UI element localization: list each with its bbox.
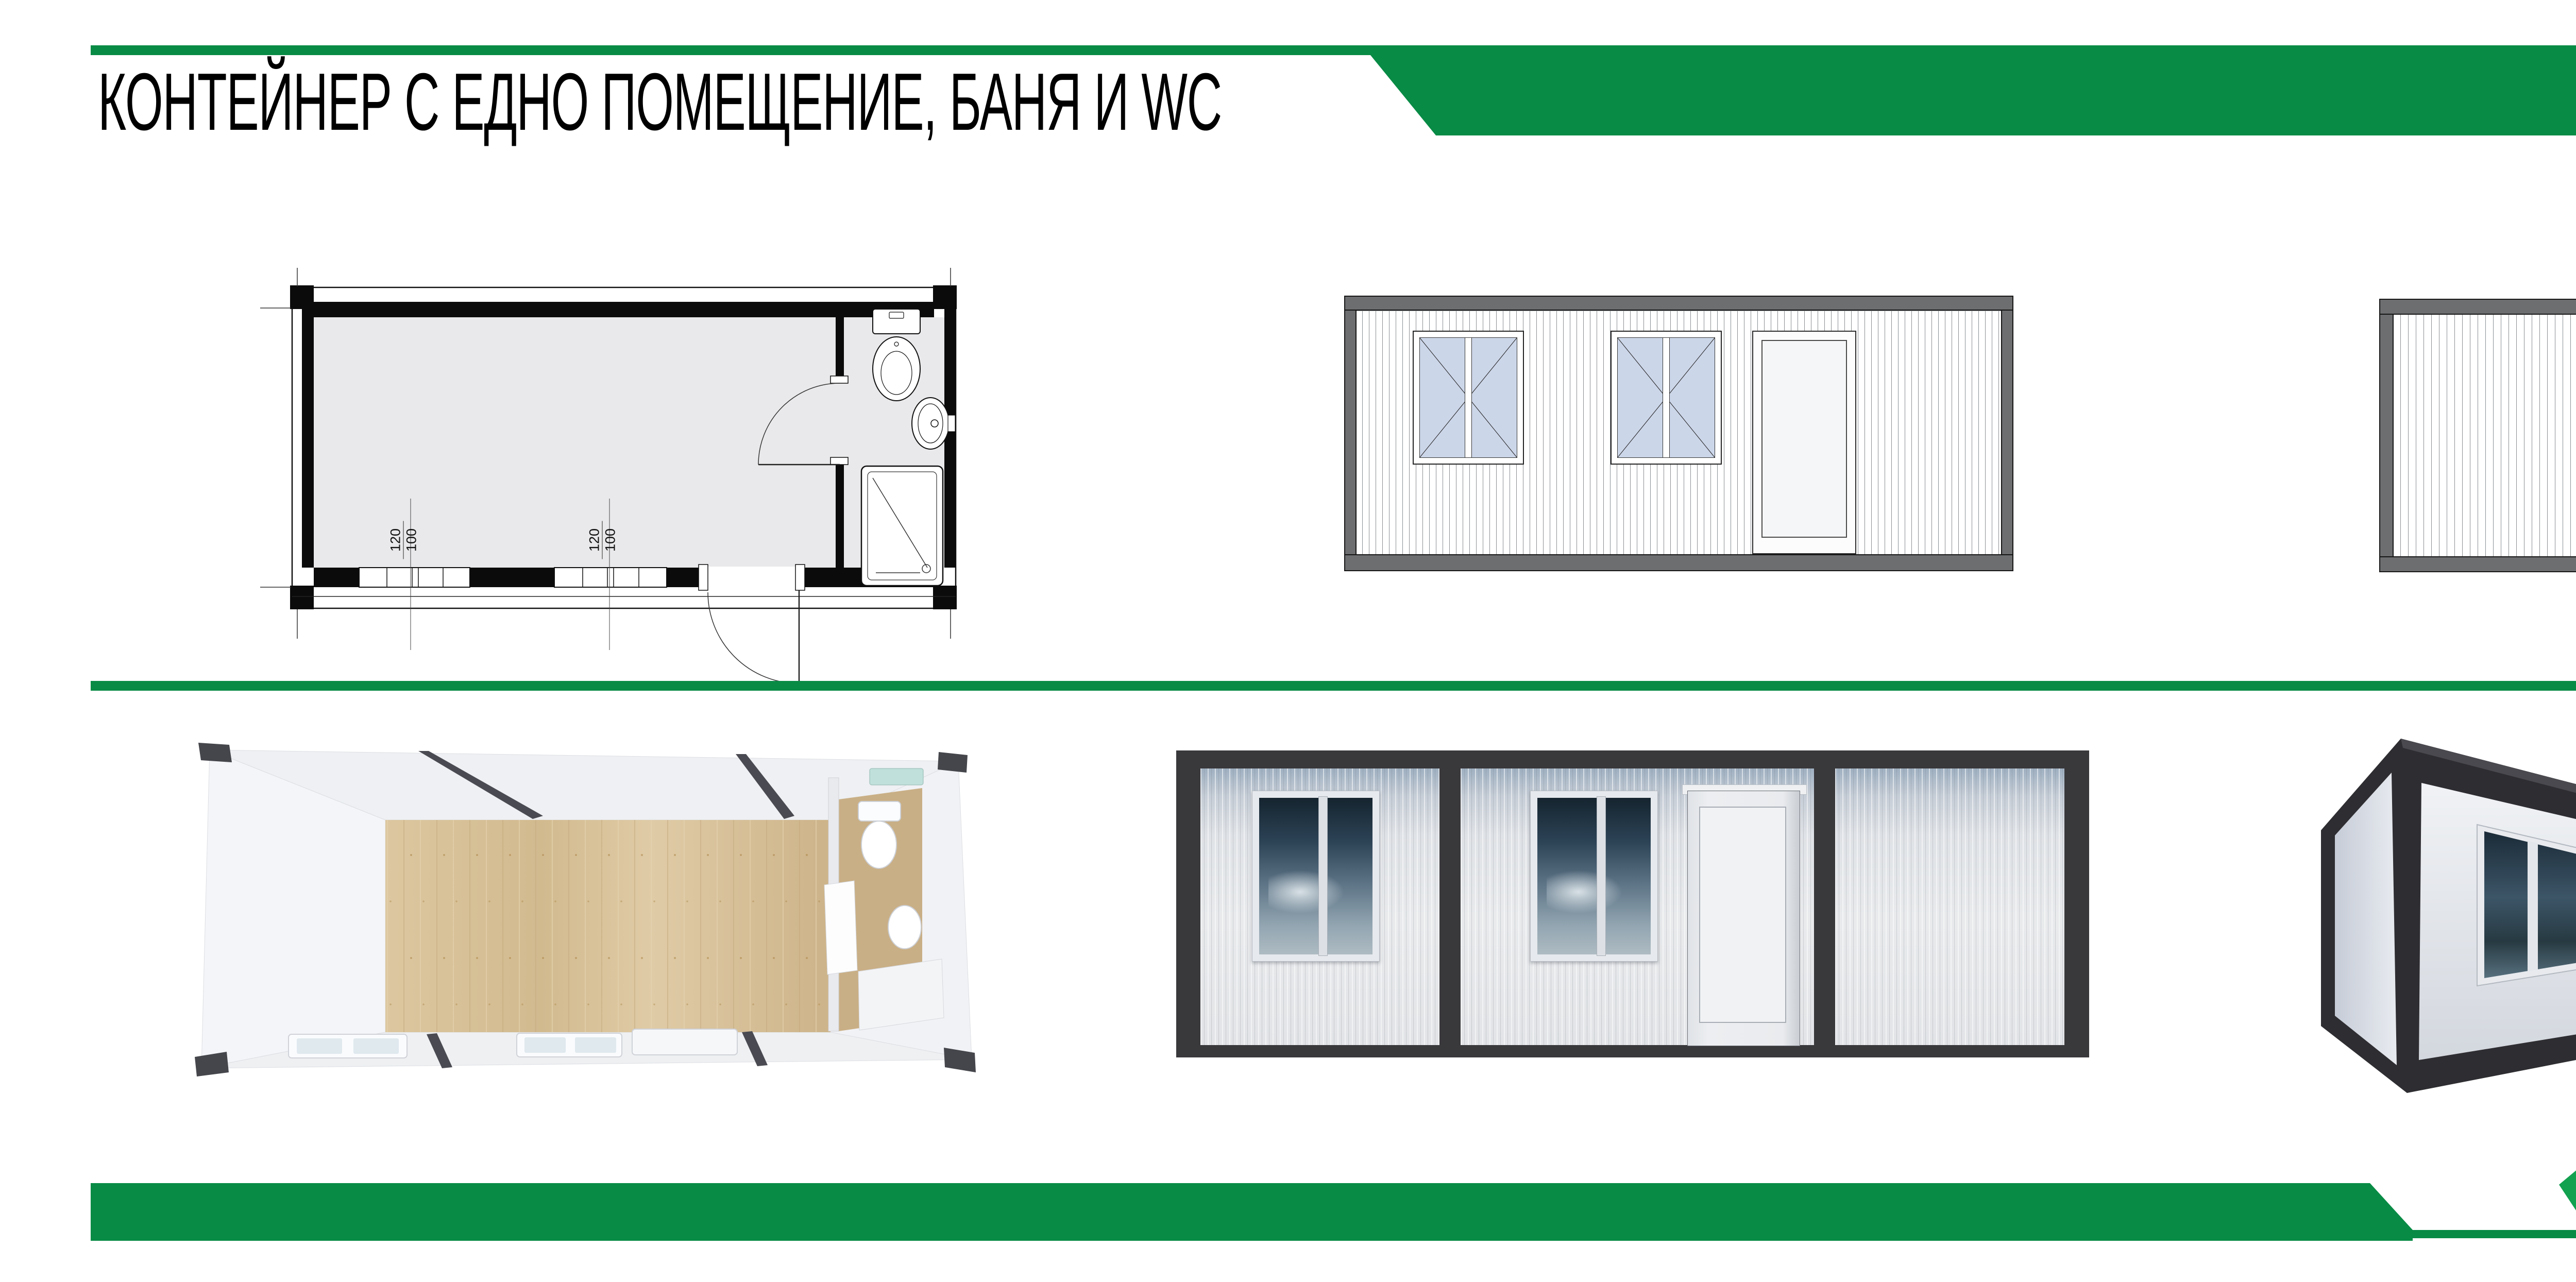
window-mullion [1318, 796, 1328, 956]
topview-shower [858, 959, 944, 1030]
window-glass [1259, 798, 1372, 954]
render-top-view [185, 726, 989, 1087]
elevation-door [1752, 331, 1856, 554]
front-elevation-drawing [1344, 296, 2013, 571]
elevation-top-rail [1344, 296, 2013, 311]
section-divider [91, 681, 2576, 691]
floor-plan-drawing [258, 252, 989, 695]
lina-checkmark-icon [2559, 1159, 2576, 1239]
dimension-label-2: 120 100 [587, 521, 618, 559]
dimension-height: 100 [403, 521, 419, 559]
topview-wood-grain [385, 820, 831, 1032]
render-front-view [1176, 750, 2089, 1057]
plan-window-symbol-1 [359, 568, 470, 587]
dimension-width: 120 [388, 521, 403, 559]
elevation-right-post [2001, 310, 2013, 555]
window-mullion [1597, 796, 1606, 956]
door-panel [1699, 807, 1786, 1023]
footer-strip [2413, 1230, 2576, 1238]
topview-bath-window [870, 768, 923, 785]
window-mullion [1465, 337, 1472, 458]
topview-bath-door [824, 881, 857, 975]
window-glass [1537, 798, 1651, 954]
window-mullion [1663, 337, 1670, 458]
cloud-reflection [1547, 868, 1626, 915]
dimension-label-1: 120 100 [388, 521, 419, 559]
plan-entrance-door [699, 565, 805, 683]
elevation-left-post [1344, 310, 1357, 555]
elevation-bottom-rail [1344, 554, 2013, 571]
elevation-top-rail [2379, 299, 2576, 315]
plan-toilet [873, 309, 920, 401]
cloud-reflection [1268, 868, 1348, 915]
page-title: КОНТЕЙНЕР С ЕДНО ПОМЕЩЕНИЕ, БАНЯ И WC [98, 66, 1971, 138]
lina-logo: LINA [2553, 1153, 2576, 1240]
dimension-width: 120 [587, 521, 602, 559]
elevation-window-1 [1413, 331, 1524, 465]
render-siding-panel-3 [1835, 768, 2064, 1045]
render-door [1687, 791, 1800, 1046]
perspective-window-1 [2477, 825, 2576, 986]
elevation-bottom-rail [2379, 556, 2576, 572]
footer-banner [91, 1183, 2413, 1241]
plan-window-symbol-2 [554, 568, 667, 587]
door-panel [1761, 340, 1847, 538]
render-window-2 [1530, 791, 1658, 962]
elevation-left-post [2379, 314, 2394, 557]
page-number: 0 0 8 [2571, 63, 2576, 119]
plan-shower [861, 466, 943, 586]
dimension-height: 100 [602, 521, 618, 559]
topview-sink [888, 905, 921, 949]
plan-wall-top [314, 302, 934, 317]
elevation-siding [2393, 315, 2576, 556]
page-title-text: КОНТЕЙНЕР С ЕДНО ПОМЕЩЕНИЕ, БАНЯ И WC [98, 66, 1222, 138]
rear-elevation-drawing [2379, 299, 2576, 572]
render-perspective-view [2287, 716, 2576, 1180]
elevation-window-2 [1611, 331, 1722, 465]
render-window-1 [1252, 791, 1380, 962]
plan-wall-left [302, 302, 314, 568]
